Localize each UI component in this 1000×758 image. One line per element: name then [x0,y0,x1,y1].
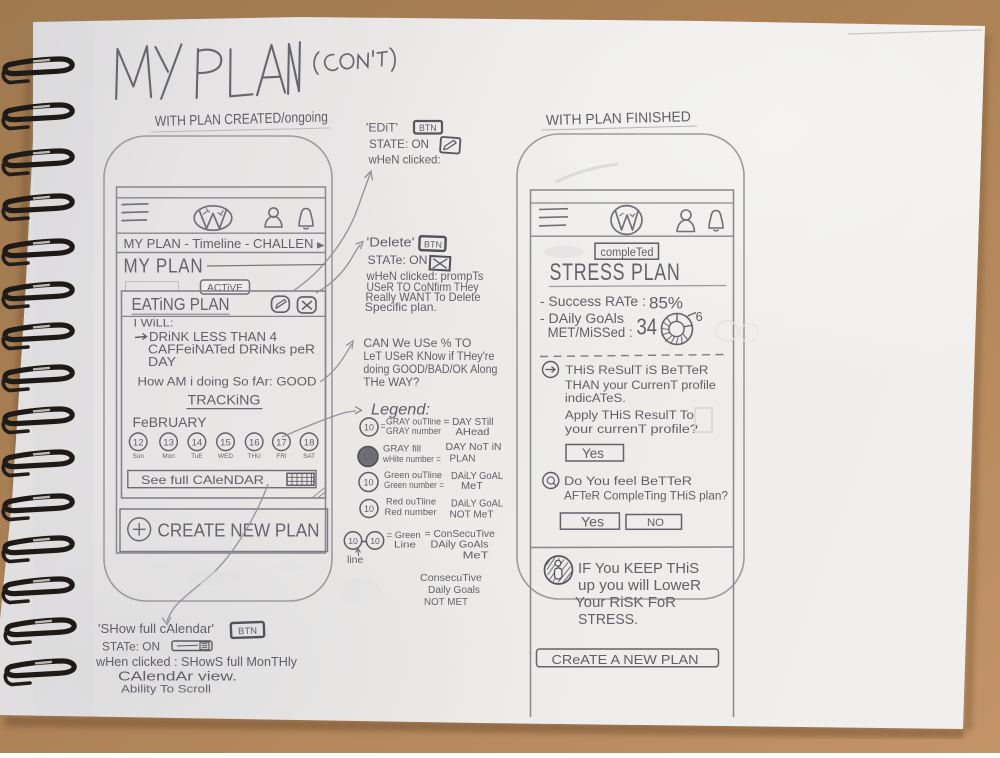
svg-text:AFTeR CompleTing THiS plan?: AFTeR CompleTing THiS plan? [564,489,728,503]
svg-text:12: 12 [133,437,144,448]
svg-text:THiS ReSulT iS BeTTeR: THiS ReSulT iS BeTTeR [565,363,708,377]
svg-text:STATE: ON: STATE: ON [369,137,429,151]
svg-text:MeT: MeT [463,551,489,562]
svg-text:I WiLL:: I WiLL: [134,318,174,330]
svg-text:BTN: BTN [424,239,442,250]
svg-text:wHen clicked : SHowS full MonT: wHen clicked : SHowS full MonTHly [95,655,298,669]
svg-text:Red ouTline: Red ouTline [386,497,436,507]
svg-text:STATe: ON: STATe: ON [368,253,428,267]
svg-text:THe WAY?: THe WAY? [363,375,419,389]
svg-text:BTN: BTN [419,123,437,133]
svg-text:NOT MET: NOT MET [424,597,468,608]
svg-text:MET/MiSSed :: MET/MiSSed : [548,325,633,340]
svg-text:How AM i doing So fAr: GOOD: How AM i doing So fAr: GOOD [138,375,317,389]
svg-text:MeT: MeT [461,481,483,492]
svg-text:CAN We USe % TO: CAN We USe % TO [363,336,471,350]
svg-text:15: 15 [220,437,231,448]
svg-text:10: 10 [348,536,358,546]
svg-text:TRACKiNG: TRACKiNG [188,393,261,408]
svg-text:GRAY number: GRAY number [386,426,441,436]
svg-text:LeT USeR KNow if THey're: LeT USeR KNow if THey're [363,349,494,363]
svg-text:18: 18 [304,437,315,448]
svg-text:16: 16 [249,437,260,448]
svg-text:Red number: Red number [385,507,437,517]
svg-text:Yes: Yes [582,446,604,461]
svg-text:AHead: AHead [456,427,490,438]
svg-text:FRi: FRi [276,453,286,460]
svg-text:'Delete': 'Delete' [367,236,415,250]
svg-text:DAY: DAY [148,355,177,369]
svg-text:Specific plan.: Specific plan. [365,301,437,314]
svg-text:10: 10 [370,536,380,546]
svg-text:10: 10 [363,478,373,488]
svg-text:WED: WED [218,453,233,460]
svg-text:Sun: Sun [133,453,145,460]
svg-text:THAN your CurrenT profile: THAN your CurrenT profile [565,378,716,392]
svg-text:Your RiSK FoR: Your RiSK FoR [575,595,676,611]
svg-text:CAlendAr view.: CAlendAr view. [118,669,237,684]
svg-text:GRAY fill: GRAY fill [383,444,421,454]
svg-text:THU: THU [248,453,262,460]
svg-text:10: 10 [364,504,374,514]
svg-text:CREATE NEW PLAN: CREATE NEW PLAN [158,520,320,541]
svg-text:your currenT profile?: your currenT profile? [565,422,698,436]
svg-text:=: = [381,421,386,431]
svg-text:wHite number =: wHite number = [382,454,441,464]
svg-text:SAT: SAT [303,453,315,460]
svg-text:13: 13 [163,437,174,448]
svg-text:Daily Goals: Daily Goals [428,585,480,596]
svg-text:line: line [347,554,364,566]
svg-text:TuE: TuE [191,453,202,460]
svg-text:BTN: BTN [238,626,258,638]
svg-text:Apply THiS ResulT To: Apply THiS ResulT To [565,408,694,422]
svg-text:= Green: = Green [387,530,421,540]
svg-text:compleTed: compleTed [601,247,654,259]
svg-text:'SHow full cAlendar': 'SHow full cAlendar' [98,621,214,636]
svg-text:MY PLAN: MY PLAN [124,255,204,278]
svg-text:Do You feel BeTTeR: Do You feel BeTTeR [564,474,692,488]
svg-text:85%: 85% [649,294,683,313]
svg-text:10: 10 [363,452,373,462]
svg-text:- DAily GoAls: - DAily GoAls [540,311,624,326]
svg-text:'EDiT': 'EDiT' [366,121,398,135]
svg-text:FeBRUARY: FeBRUARY [133,415,207,430]
svg-text:DAily GoAls: DAily GoAls [431,540,489,551]
svg-text:Line: Line [394,540,416,550]
svg-text:PLAN: PLAN [450,454,476,465]
svg-text:STRESS PLAN: STRESS PLAN [550,259,681,286]
svg-text:ACTiVE: ACTiVE [207,282,243,294]
svg-text:Green ouTline: Green ouTline [384,470,442,480]
svg-text:STATe: ON: STATe: ON [102,640,160,654]
svg-text:Mon: Mon [162,453,175,460]
svg-text:NO: NO [647,517,664,529]
svg-text:34: 34 [637,314,658,340]
svg-text:indicATeS.: indicATeS. [565,391,626,405]
svg-text:10: 10 [364,423,374,433]
svg-text:= ConSecuTive: = ConSecuTive [425,529,495,540]
svg-text:DAiLY GoAL: DAiLY GoAL [451,499,504,510]
svg-text:17: 17 [276,437,287,448]
svg-text:up you will LoweR: up you will LoweR [578,578,701,594]
svg-text:See full CAleNDAR: See full CAleNDAR [141,473,264,487]
svg-text:MY PLAN - Timeline - CHALLEN: MY PLAN - Timeline - CHALLEN [124,236,314,251]
svg-text:Yes: Yes [581,514,604,529]
svg-text:14: 14 [192,437,203,448]
svg-text:CReATE A NEW PLAN: CReATE A NEW PLAN [552,652,699,667]
svg-text:6: 6 [696,309,703,324]
svg-text:Ability To Scroll: Ability To Scroll [121,684,211,696]
svg-text:ConsecuTive: ConsecuTive [420,573,482,584]
svg-text:STRESS.: STRESS. [578,612,638,628]
svg-text:EATiNG PLAN: EATiNG PLAN [132,294,230,314]
svg-text:Green number =: Green number = [384,480,444,490]
svg-text:IF You KEEP THiS: IF You KEEP THiS [578,561,699,577]
svg-text:DAY NoT iN: DAY NoT iN [446,442,502,453]
svg-text:- Success RATe :: - Success RATe : [540,294,646,309]
svg-text:wHeN clicked:: wHeN clicked: [368,153,441,167]
svg-text:NOT MeT: NOT MeT [450,510,494,521]
